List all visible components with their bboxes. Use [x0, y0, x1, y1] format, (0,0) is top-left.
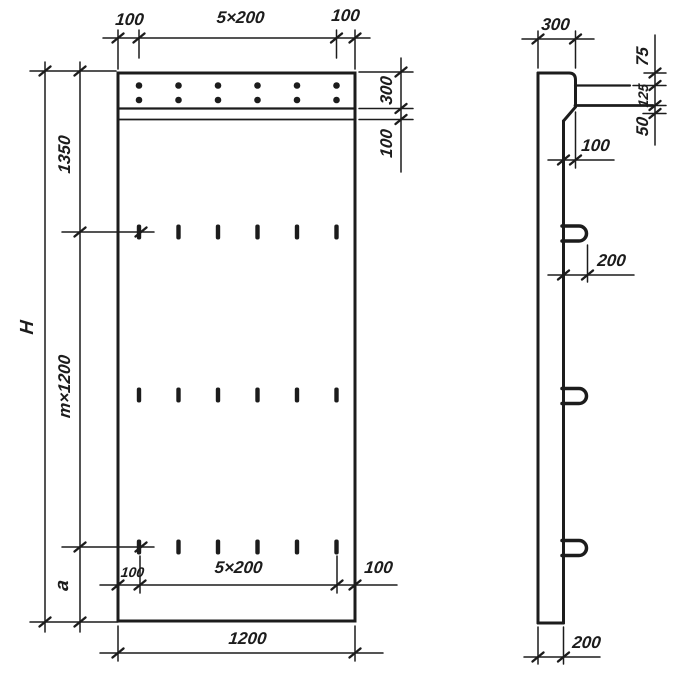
- front-right-dimensions: 300 100: [359, 58, 413, 172]
- side-chain-mid-label: 125: [635, 83, 651, 108]
- front-band-height-label: 300: [377, 75, 396, 106]
- front-left-dimensions: H 1350 m×1200 a: [17, 62, 154, 632]
- front-width-total-label: 1200: [228, 629, 268, 648]
- side-overhang-dimension: 100: [548, 112, 614, 168]
- slot-mark-row-top: [137, 225, 339, 240]
- loop-top: [562, 226, 587, 241]
- side-chain-top-label: 75: [633, 45, 652, 66]
- side-top-dimension: 300: [522, 15, 594, 68]
- anchor-dot-rows: [136, 82, 340, 103]
- front-view: 100 5×200 100 H 1350 m×1200 a: [17, 6, 413, 661]
- loop-middle: [562, 389, 587, 404]
- front-top-left-dim-label: 100: [114, 10, 145, 29]
- front-top-span-dim-label: 5×200: [216, 8, 266, 27]
- slot-mark-row-bottom: [137, 540, 339, 555]
- front-bottom-left-dim-label: 100: [120, 564, 145, 580]
- front-band-strip-label: 100: [377, 128, 396, 159]
- front-height-top-label: 1350: [55, 134, 74, 174]
- front-height-total-label: H: [17, 318, 38, 335]
- side-chain-bottom-label: 50: [633, 115, 652, 136]
- side-loop-dimension: 200: [548, 245, 634, 282]
- front-height-bottom-label: a: [52, 579, 73, 592]
- side-loop-length-label: 200: [595, 251, 627, 270]
- side-overhang-label: 100: [580, 136, 611, 155]
- side-thickness-label: 200: [570, 633, 602, 652]
- front-width-dimension: 1200: [100, 626, 383, 661]
- front-top-dimension: 100 5×200 100: [103, 6, 370, 69]
- technical-drawing: 100 5×200 100 H 1350 m×1200 a: [0, 0, 700, 700]
- front-bottom-span-dim-label: 5×200: [214, 558, 264, 577]
- side-view: 300 75 125 50 100: [522, 15, 666, 664]
- front-top-right-dim-label: 100: [330, 6, 361, 25]
- side-top-width-label: 300: [540, 15, 571, 34]
- loop-bottom: [562, 541, 587, 556]
- front-bottom-inner-dimension: 100 5×200 100: [100, 556, 397, 593]
- slot-mark-row-middle: [137, 388, 339, 403]
- side-thickness-dimension: 200: [524, 627, 602, 664]
- front-bottom-right-dim-label: 100: [363, 558, 394, 577]
- cap-outline: [538, 73, 576, 121]
- side-right-chain-dimension: 75 125 50: [633, 35, 666, 145]
- front-height-mid-label: m×1200: [55, 354, 74, 419]
- panel-outline: [118, 73, 355, 621]
